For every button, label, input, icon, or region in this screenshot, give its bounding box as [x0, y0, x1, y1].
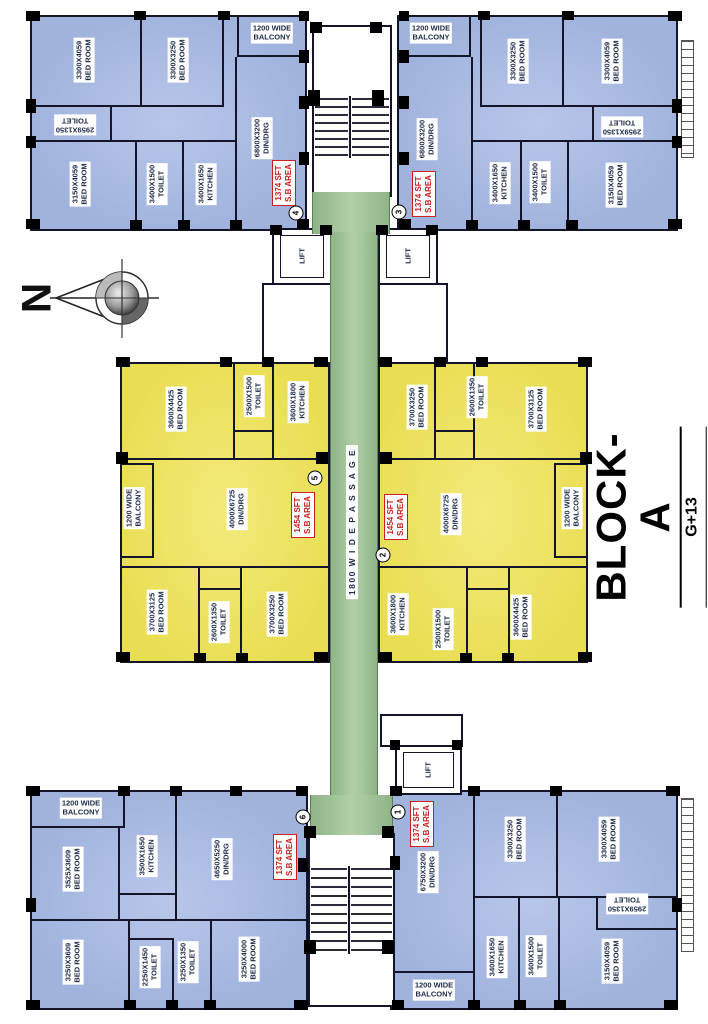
column — [566, 220, 578, 230]
label-unit5-kitchen: 3600X1800KITCHEN — [288, 381, 309, 423]
label-unit1-bed2: 3300X4059BED ROOM — [599, 816, 620, 861]
lobby-top-right — [378, 283, 448, 364]
label-unit1-din: 6750X3200DIN/DRG — [418, 851, 439, 893]
passage-lower — [330, 663, 378, 796]
wall — [558, 898, 560, 1010]
stairwell-top — [312, 25, 392, 197]
column — [26, 786, 40, 796]
column — [299, 152, 309, 165]
column — [460, 653, 472, 663]
column — [476, 357, 488, 367]
stair-tread — [351, 913, 392, 915]
passage-landing-bottom — [310, 795, 393, 835]
label-unit4-kitchen: 3400X1650KITCHEN — [196, 163, 217, 205]
label-lift-top-left: LIFT — [296, 246, 307, 266]
stair-tread — [311, 877, 347, 879]
stair-tread — [315, 154, 348, 156]
label-unit6-toilet1: 2250X1450TOILET — [140, 946, 161, 988]
label-unit3-din: 6800X3200DIN/DRG — [417, 118, 438, 160]
label-unit1-sb-area: 1374 SFTS.B AREA — [410, 801, 434, 847]
label-unit1-kitchen: 3400X1650KITCHEN — [487, 936, 508, 978]
wall — [378, 458, 588, 460]
column — [392, 1000, 404, 1010]
column — [378, 652, 392, 662]
column — [380, 452, 392, 464]
label-unit3-balcony: 1200 WIDEBALCONY — [410, 23, 452, 44]
wall — [120, 458, 330, 460]
column — [390, 740, 400, 750]
column — [26, 136, 36, 148]
unit4-number: 4 — [289, 206, 304, 221]
wall — [349, 96, 351, 158]
label-unit2-bed1: 3700X3250BED ROOM — [407, 384, 428, 429]
unit6-number: 6 — [296, 810, 311, 825]
compass: N — [22, 252, 162, 344]
wall — [120, 566, 330, 568]
column — [399, 219, 411, 229]
label-unit2-bed3: 3600X4425BED ROOM — [511, 594, 532, 639]
column — [468, 1000, 480, 1010]
column — [399, 96, 409, 109]
column — [170, 786, 182, 796]
wall — [237, 55, 307, 57]
label-unit5-bed3: 3700X3250BED ROOM — [267, 591, 288, 636]
column — [478, 11, 490, 20]
wall — [469, 15, 471, 57]
label-unit6-bed2: 3250X3609BED ROOM — [63, 939, 84, 984]
wall — [556, 790, 558, 898]
label-unit3-bed2: 3300X4059BED ROOM — [602, 38, 623, 83]
column — [554, 1000, 566, 1010]
stair-tread — [311, 886, 347, 888]
column — [399, 11, 409, 21]
stair-tread — [311, 940, 347, 942]
column — [578, 357, 592, 367]
wall — [434, 430, 475, 432]
column — [426, 225, 438, 235]
stair-tread — [311, 868, 347, 870]
label-lift-top-right: LIFT — [402, 246, 413, 266]
column — [550, 786, 562, 796]
wall — [473, 790, 475, 973]
stair-tread — [351, 868, 392, 870]
stair-tread — [315, 114, 348, 116]
ledge-top-right — [681, 40, 694, 158]
wall — [592, 105, 594, 142]
column — [514, 1000, 526, 1010]
wall — [128, 921, 130, 1010]
wall — [118, 893, 177, 895]
unit3-number: 3 — [392, 205, 407, 220]
column — [320, 225, 332, 235]
label-unit3-toilet1: 2959X1350TOILET — [601, 117, 643, 138]
label-unit2-toilet1: 2600X1350TOILET — [467, 376, 488, 418]
label-unit5-din: 4000X6725DIN/DRG — [227, 488, 248, 530]
column — [672, 136, 682, 148]
wall — [30, 919, 308, 921]
lobby-top-left — [262, 283, 332, 364]
stair-tread — [311, 922, 347, 924]
wall — [118, 828, 120, 921]
column — [664, 1000, 678, 1010]
wall — [378, 566, 588, 568]
column — [26, 898, 36, 912]
wall — [554, 556, 588, 558]
label-unit5-balcony: 1200 WIDEBALCONY — [124, 487, 145, 529]
wall — [471, 57, 473, 231]
label-unit4-din: 6800X3200DIN/DRG — [252, 117, 273, 159]
passage-between-lifts — [330, 232, 378, 364]
wall — [562, 15, 564, 107]
wall — [471, 140, 678, 142]
stair-tread — [315, 122, 348, 124]
stair-tread — [352, 146, 389, 148]
wall — [235, 57, 237, 231]
wall — [240, 568, 242, 663]
passage-label: 1800 W I D E P A S S A G E — [346, 445, 358, 599]
wall — [198, 568, 200, 663]
column — [118, 786, 130, 796]
stair-tread — [315, 106, 348, 108]
wall — [175, 790, 177, 921]
stair-tread — [352, 130, 389, 132]
stair-tread — [315, 130, 348, 132]
column — [390, 786, 402, 796]
wall — [567, 142, 569, 231]
column — [178, 220, 190, 230]
column — [304, 940, 316, 954]
stair-tread — [352, 122, 389, 124]
column — [220, 357, 232, 367]
column — [370, 22, 382, 33]
column — [390, 856, 400, 870]
label-unit4-bed2: 3300X3250BED ROOM — [168, 37, 189, 82]
column — [316, 452, 328, 464]
column — [299, 11, 309, 21]
column — [376, 225, 388, 235]
column — [399, 152, 409, 165]
wall — [128, 938, 174, 940]
wall — [272, 362, 274, 460]
wall — [395, 971, 475, 973]
unit5-number: 5 — [308, 471, 323, 486]
column — [304, 826, 316, 838]
column — [308, 90, 320, 106]
label-unit6-din: 4650X5250DIN/DRG — [212, 838, 233, 880]
wall — [198, 588, 242, 590]
label-unit2-kitchen: 3600X1800KITCHEN — [388, 593, 409, 635]
column — [299, 50, 309, 63]
wall — [480, 105, 678, 107]
floor-plan: 1200 WIDEBALCONY 3300X4059BED ROOM 3300X… — [0, 0, 708, 1024]
column — [378, 357, 392, 367]
column — [26, 1000, 40, 1010]
label-unit3-kitchen: 3400X1650KITCHEN — [490, 162, 511, 204]
column — [502, 653, 514, 663]
wall — [466, 588, 510, 590]
label-unit5-sb-area: 1454 SFTS.B AREA — [291, 492, 315, 538]
wall — [237, 15, 239, 57]
column — [194, 653, 206, 663]
stair-tread — [352, 114, 389, 116]
label-unit1-toilet2: 3400X1500TOILET — [526, 935, 547, 977]
wall — [30, 105, 224, 107]
column — [134, 11, 146, 20]
label-unit6-balcony: 1200 WIDEBALCONY — [60, 798, 102, 819]
column — [452, 740, 462, 750]
label-unit2-sb-area: 1454 SFTS.B AREA — [384, 494, 408, 540]
column — [116, 357, 130, 367]
unit1-number: 1 — [391, 805, 406, 820]
column — [518, 220, 530, 230]
label-unit4-balcony: 1200 WIDEBALCONY — [251, 23, 293, 44]
label-unit5-bed1: 3600X4425BED ROOM — [166, 386, 187, 431]
wall — [518, 898, 520, 1010]
wall — [152, 463, 154, 558]
column — [382, 826, 394, 838]
label-unit3-sb-area: 1374 SFTS.B AREA — [412, 171, 436, 217]
wall — [182, 142, 184, 231]
column — [230, 786, 242, 796]
label-unit4-bed3: 3150X4059BED ROOM — [70, 161, 91, 206]
label-unit4-toilet1: 2959X1350TOILET — [54, 115, 96, 136]
column — [262, 357, 274, 367]
column — [666, 786, 680, 796]
wall — [140, 15, 142, 107]
label-unit4-sb-area: 1374 SFTS.B AREA — [272, 160, 296, 206]
label-unit6-kitchen: 3500X1650KITCHEN — [137, 835, 158, 877]
stair-tread — [311, 949, 347, 951]
wall — [348, 866, 350, 954]
wall — [110, 105, 112, 142]
label-unit2-bed2: 3700X3125BED ROOM — [526, 386, 547, 431]
column — [166, 1000, 178, 1010]
wall — [596, 928, 678, 930]
column — [672, 99, 682, 113]
column — [562, 11, 574, 20]
column — [672, 898, 682, 912]
label-unit6-bed3: 3250X4000BED ROOM — [239, 936, 260, 981]
label-unit4-bed1: 3300X4059BED ROOM — [74, 37, 95, 82]
column — [297, 219, 309, 229]
column — [314, 357, 328, 367]
column — [236, 653, 248, 663]
column — [270, 225, 282, 235]
wall — [120, 556, 154, 558]
column — [668, 219, 682, 229]
unit2-number: 2 — [376, 548, 391, 563]
stair-tread — [315, 146, 348, 148]
column — [372, 90, 384, 106]
stair-tread — [351, 922, 392, 924]
label-lift-bottom: LIFT — [422, 760, 433, 780]
column — [116, 452, 128, 464]
wall — [520, 142, 522, 231]
label-unit2-din: 4000X6725DIN/DRG — [441, 493, 462, 535]
wall — [222, 15, 224, 107]
stair-tread — [351, 877, 392, 879]
stair-tread — [352, 154, 389, 156]
stair-tread — [315, 138, 348, 140]
wall — [210, 921, 212, 1010]
block-name: BLOCK-A — [590, 426, 682, 607]
label-unit5-toilet2: 2600X1350TOILET — [209, 601, 230, 643]
label-unit1-balcony: 1200 WIDEBALCONY — [413, 980, 455, 1001]
column — [116, 652, 130, 662]
label-unit5-toilet1: 2500X1500TOILET — [244, 375, 265, 417]
wall — [480, 15, 482, 107]
stair-tread — [311, 904, 347, 906]
wall — [135, 142, 137, 231]
label-unit6-bed1: 3525X3609BED ROOM — [63, 846, 84, 891]
stair-tread — [351, 895, 392, 897]
wall — [596, 898, 598, 930]
column — [26, 99, 36, 113]
wall — [233, 430, 274, 432]
label-unit4-toilet2: 3400X1500TOILET — [147, 163, 168, 205]
column — [668, 11, 682, 21]
column — [468, 786, 480, 796]
stair-tread — [311, 931, 347, 933]
label-unit2-toilet2: 2500X1500TOILET — [433, 608, 454, 650]
wall — [30, 140, 237, 142]
wall — [233, 362, 235, 460]
column — [466, 220, 478, 230]
stairwell-bottom — [308, 833, 395, 1007]
label-unit1-bed3: 3150X4059BED ROOM — [602, 938, 623, 983]
label-unit6-toilet2: 3250X1350TOILET — [178, 941, 199, 983]
column — [230, 220, 242, 230]
label-unit1-bed1: 3300X3250BED ROOM — [505, 816, 526, 861]
column — [310, 22, 322, 33]
column — [399, 50, 409, 63]
stair-tread — [311, 895, 347, 897]
column — [294, 1000, 308, 1010]
wall — [434, 362, 436, 460]
column — [296, 786, 308, 796]
stair-tread — [352, 106, 389, 108]
label-unit3-bed3: 3150X4059BED ROOM — [606, 162, 627, 207]
stair-tread — [351, 886, 392, 888]
label-unit5-bed2: 3700X3125BED ROOM — [147, 589, 168, 634]
label-unit3-toilet2: 3400X1500TOILET — [530, 161, 551, 203]
column — [130, 220, 142, 230]
stair-tread — [351, 904, 392, 906]
label-unit2-balcony: 1200 WIDEBALCONY — [562, 487, 583, 529]
column — [218, 11, 230, 20]
column — [26, 11, 40, 21]
label-unit3-bed1: 3300X3250BED ROOM — [508, 38, 529, 83]
label-unit1-toilet1: 2959X1350TOILET — [606, 894, 648, 915]
wall — [466, 568, 468, 663]
ledge-bottom-right — [681, 798, 694, 952]
block-floors: G+13 — [682, 426, 706, 607]
column — [26, 219, 40, 229]
stair-tread — [351, 931, 392, 933]
label-unit6-sb-area: 1374 SFTS.B AREA — [273, 834, 297, 880]
block-title: BLOCK-A G+13 — [590, 426, 707, 607]
column — [204, 1000, 216, 1010]
column — [382, 940, 394, 954]
column — [298, 858, 308, 872]
column — [434, 357, 446, 367]
stair-tread — [311, 913, 347, 915]
wall — [30, 826, 125, 828]
column — [578, 652, 592, 662]
column — [124, 1000, 136, 1010]
stair-tread — [352, 138, 389, 140]
wall — [554, 463, 556, 558]
column — [314, 652, 328, 662]
